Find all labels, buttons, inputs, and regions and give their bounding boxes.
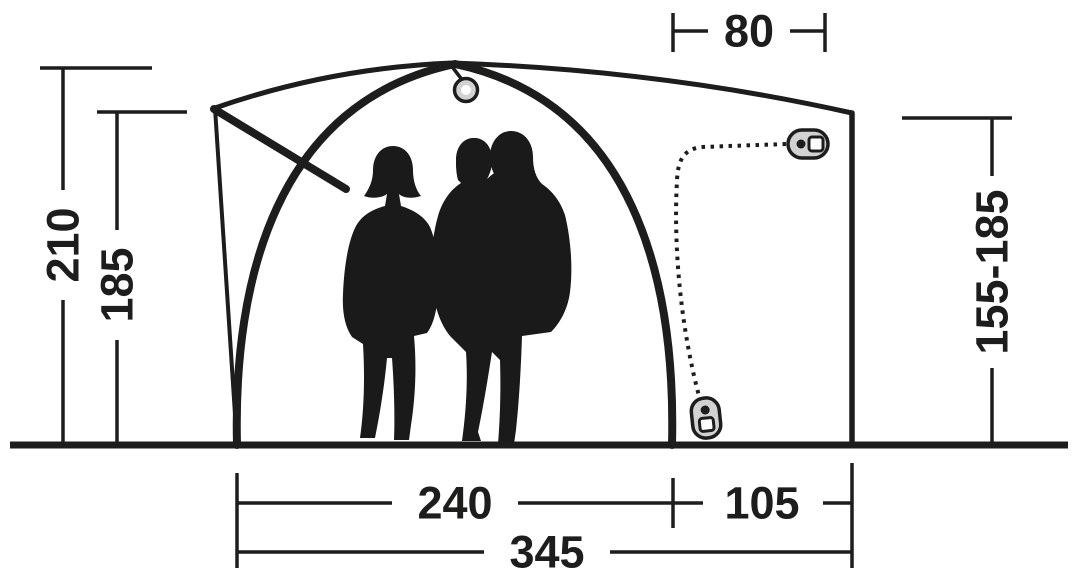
child-silhouette [456,138,492,185]
zipper-stitch-line [676,144,786,396]
label-main-section-width: 240 [417,478,492,529]
zipper-pull-bottom-icon [690,397,722,440]
label-total-width: 345 [509,527,584,578]
label-extension-width: 105 [724,478,799,529]
corner-strut [214,109,346,189]
tent-roof-edge [215,63,852,113]
label-top-width: 80 [724,6,774,57]
family-silhouette [343,131,572,444]
adult-silhouette-left [343,146,438,440]
label-peak-height: 210 [38,207,89,282]
label-front-corner-height: 185 [92,247,143,322]
zipper-pull-top-icon [788,130,828,158]
diagram-canvas: 80 210 185 155-185 240 105 345 [0,0,1079,579]
adult-with-child-silhouette [431,131,571,444]
label-side-height-range: 155-185 [967,189,1018,354]
tent-dimension-diagram: 80 210 185 155-185 240 105 345 [0,0,1079,579]
